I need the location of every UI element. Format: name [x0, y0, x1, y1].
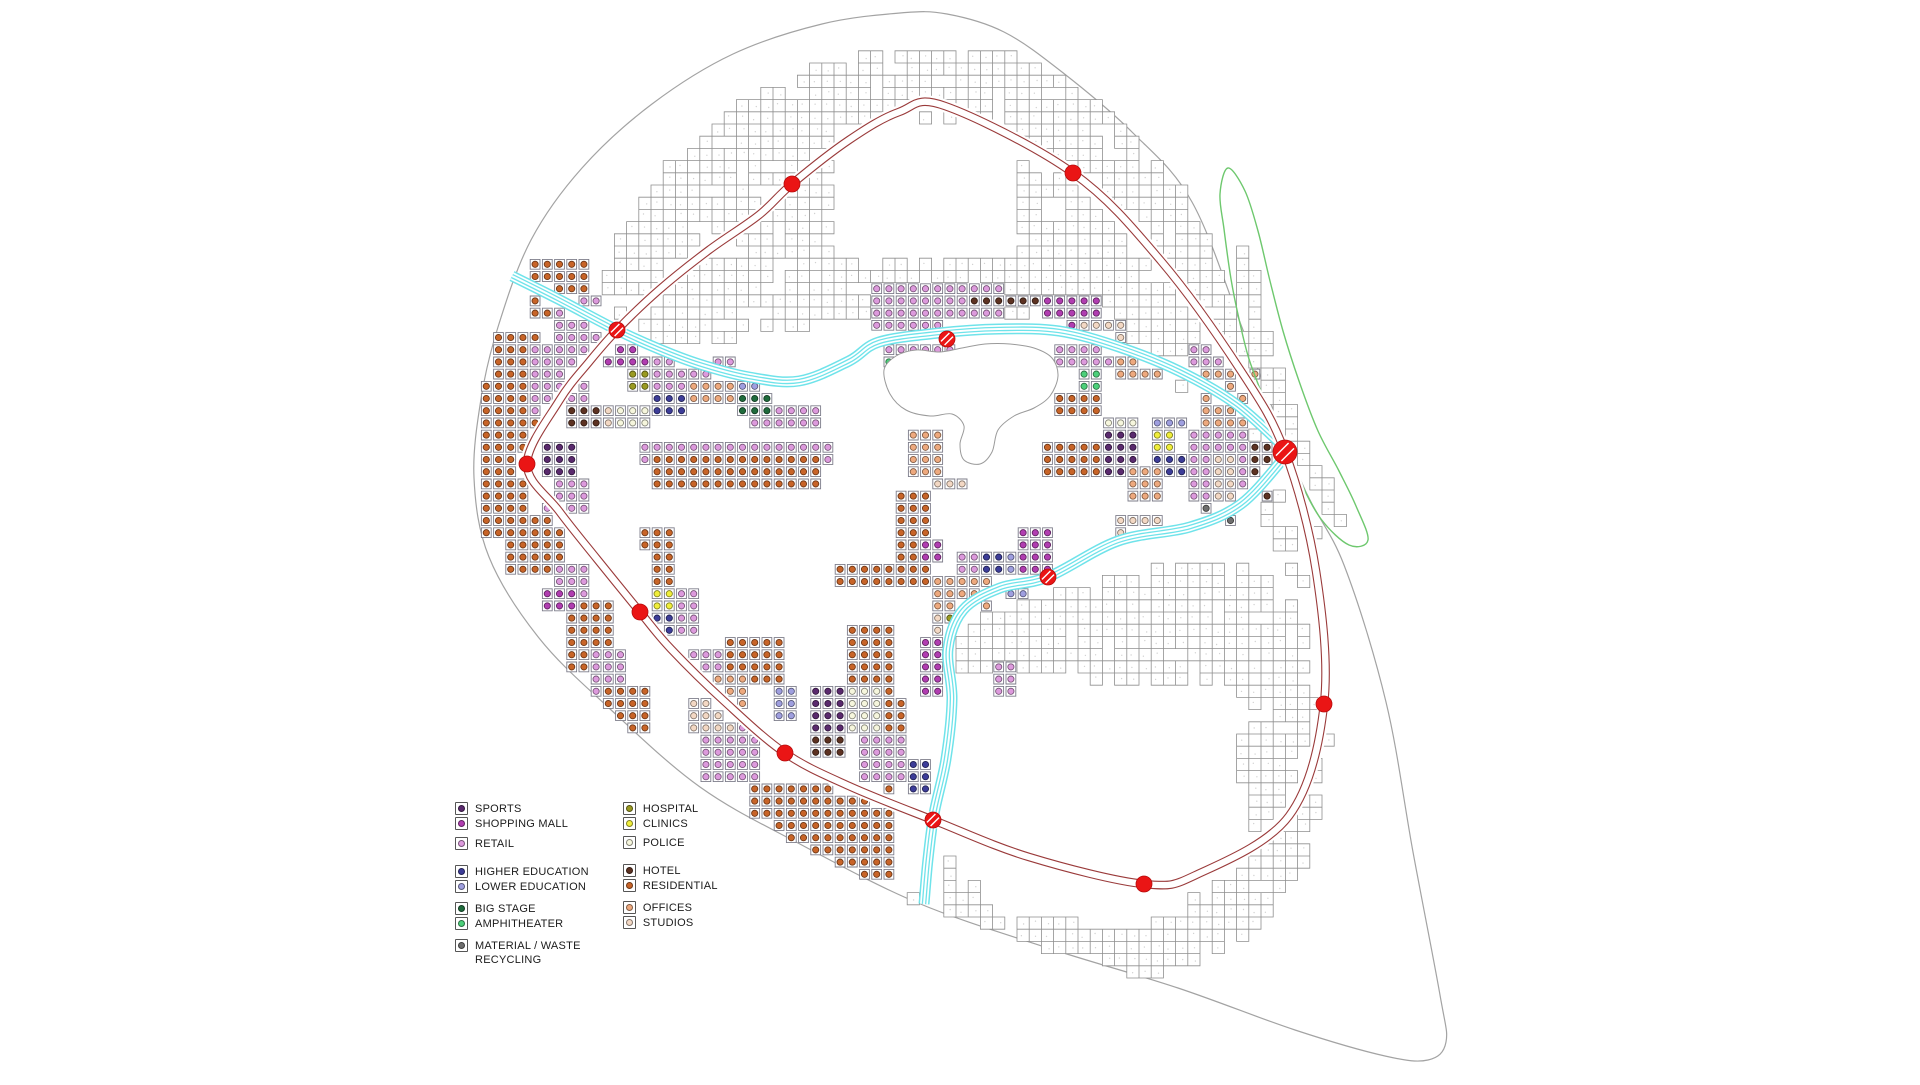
legend-item-offices: OFFICES [623, 900, 718, 915]
legend-label: POLICE [643, 837, 685, 849]
waste-recycling-swatch-icon [455, 939, 468, 952]
legend-column-right: HOSPITAL CLINICS POLICE HOTEL RESIDENTIA… [623, 801, 718, 966]
legend-item-lower-education: LOWER EDUCATION [455, 879, 589, 894]
legend-label: OFFICES [643, 902, 692, 914]
road-node [1065, 165, 1081, 181]
higher-education-swatch-icon [455, 865, 468, 878]
legend-item-material-waste-recycling: MATERIAL / WASTE [455, 938, 589, 953]
legend-label: HOTEL [643, 865, 681, 877]
road-node [1136, 876, 1152, 892]
shopping-mall-swatch-icon [455, 817, 468, 830]
legend-item-shopping-mall: SHOPPING MALL [455, 816, 589, 831]
legend-label: SHOPPING MALL [475, 818, 568, 830]
offices-swatch-icon [623, 901, 636, 914]
city-masterplan: SPORTS SHOPPING MALL RETAIL HIGHER EDUCA… [0, 0, 1920, 1080]
studios-swatch-icon [623, 916, 636, 929]
road-node [777, 745, 793, 761]
legend-item-residential: RESIDENTIAL [623, 878, 718, 893]
legend-item-retail: RETAIL [455, 836, 589, 851]
legend-label: SPORTS [475, 803, 522, 815]
big-stage-swatch-icon [455, 902, 468, 915]
road-node [632, 604, 648, 620]
legend-item-clinics: CLINICS [623, 816, 718, 831]
legend-item-higher-education: HIGHER EDUCATION [455, 864, 589, 879]
legend-item-hotel: HOTEL [623, 863, 718, 878]
road-node [939, 331, 955, 347]
legend-label: RETAIL [475, 838, 514, 850]
clinics-swatch-icon [623, 817, 636, 830]
legend-item-hospital: HOSPITAL [623, 801, 718, 816]
legend-label: RESIDENTIAL [643, 880, 718, 892]
legend-label: HIGHER EDUCATION [475, 866, 589, 878]
legend-label: LOWER EDUCATION [475, 881, 586, 893]
retail-swatch-icon [455, 837, 468, 850]
road-node [519, 456, 535, 472]
road-node [1316, 696, 1332, 712]
road-node [1040, 569, 1056, 585]
hotel-swatch-icon [623, 864, 636, 877]
legend-label: STUDIOS [643, 917, 694, 929]
road-node [1273, 440, 1297, 464]
legend-item-studios: STUDIOS [623, 915, 718, 930]
city-plan-map [0, 0, 1920, 1085]
residential-swatch-icon [623, 879, 636, 892]
road-node [784, 176, 800, 192]
legend-column-left: SPORTS SHOPPING MALL RETAIL HIGHER EDUCA… [455, 801, 589, 966]
road-node [609, 322, 625, 338]
legend-label: HOSPITAL [643, 803, 699, 815]
sports-swatch-icon [455, 802, 468, 815]
legend-label: CLINICS [643, 818, 688, 830]
hospital-swatch-icon [623, 802, 636, 815]
legend-item-police: POLICE [623, 835, 718, 850]
legend-label: AMPHITHEATER [475, 918, 563, 930]
legend-item-sports: SPORTS [455, 801, 589, 816]
legend-item-big-stage: BIG STAGE [455, 901, 589, 916]
legend-item-amphitheater: AMPHITHEATER [455, 916, 589, 931]
road-node [925, 812, 941, 828]
legend-label-line2: RECYCLING [475, 953, 589, 966]
legend: SPORTS SHOPPING MALL RETAIL HIGHER EDUCA… [455, 801, 718, 966]
lower-education-swatch-icon [455, 880, 468, 893]
amphitheater-swatch-icon [455, 917, 468, 930]
legend-label: MATERIAL / WASTE [475, 940, 581, 952]
police-swatch-icon [623, 836, 636, 849]
legend-label: BIG STAGE [475, 903, 536, 915]
